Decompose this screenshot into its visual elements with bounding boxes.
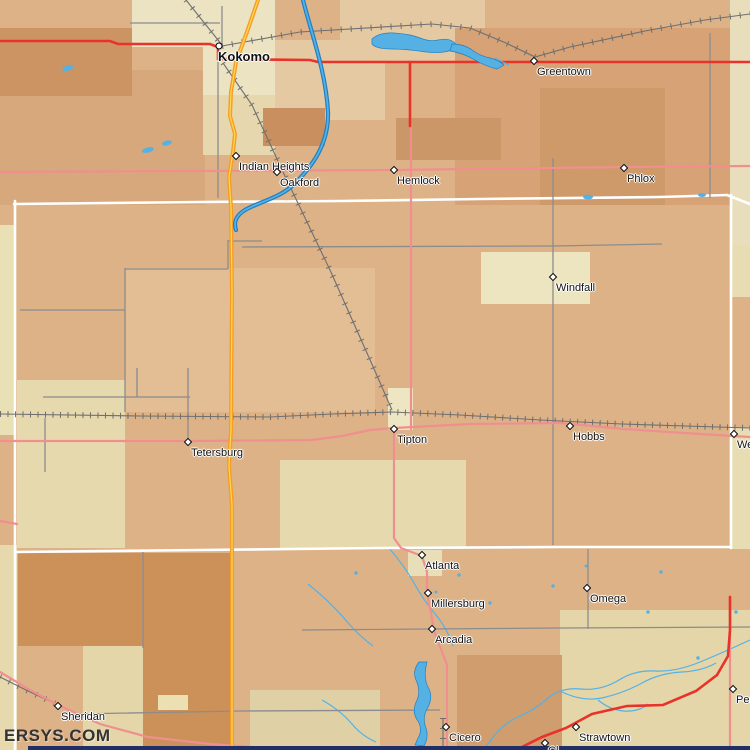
place-label-bottom-right-edge-town: Per bbox=[736, 694, 750, 706]
place-label-right-edge-town: We bbox=[737, 439, 750, 451]
place-label-windfall: Windfall bbox=[556, 282, 595, 294]
place-marker-arcadia bbox=[428, 625, 436, 633]
place-label-phlox: Phlox bbox=[627, 173, 655, 185]
place-marker-hemlock bbox=[390, 166, 398, 174]
place-marker-atlanta bbox=[418, 551, 426, 559]
place-label-greentown: Greentown bbox=[537, 66, 591, 78]
place-marker-windfall bbox=[549, 273, 557, 281]
place-label-strawtown: Strawtown bbox=[579, 732, 630, 744]
place-marker-hobbs bbox=[566, 422, 574, 430]
place-marker-sheridan bbox=[54, 702, 62, 710]
place-label-millersburg: Millersburg bbox=[431, 598, 485, 610]
place-layer: KokomoGreentownIndian HeightsOakfordHeml… bbox=[0, 0, 750, 750]
place-label-kokomo: Kokomo bbox=[218, 51, 270, 63]
place-label-arcadia: Arcadia bbox=[435, 634, 472, 646]
place-label-tetersburg: Tetersburg bbox=[191, 447, 243, 459]
place-marker-cicero bbox=[442, 723, 450, 731]
place-label-hemlock: Hemlock bbox=[397, 175, 440, 187]
place-label-bottom-edge-town: Cl bbox=[548, 745, 558, 750]
place-marker-tetersburg bbox=[184, 438, 192, 446]
place-label-omega: Omega bbox=[590, 593, 626, 605]
watermark: ERSYS.COM bbox=[4, 726, 111, 746]
place-label-tipton: Tipton bbox=[397, 434, 427, 446]
place-marker-indian-heights bbox=[232, 152, 240, 160]
place-label-hobbs: Hobbs bbox=[573, 431, 605, 443]
place-label-sheridan: Sheridan bbox=[61, 711, 105, 723]
place-marker-omega bbox=[583, 584, 591, 592]
place-marker-strawtown bbox=[572, 723, 580, 731]
place-marker-bottom-right-edge-town bbox=[729, 685, 737, 693]
place-label-atlanta: Atlanta bbox=[425, 560, 459, 572]
place-marker-phlox bbox=[620, 164, 628, 172]
place-marker-right-edge-town bbox=[730, 430, 738, 438]
map-canvas[interactable]: KokomoGreentownIndian HeightsOakfordHeml… bbox=[0, 0, 750, 750]
place-marker-millersburg bbox=[424, 589, 432, 597]
place-marker-greentown bbox=[530, 57, 538, 65]
place-marker-tipton bbox=[390, 425, 398, 433]
place-label-cicero: Cicero bbox=[449, 732, 481, 744]
place-label-oakford: Oakford bbox=[280, 177, 319, 189]
